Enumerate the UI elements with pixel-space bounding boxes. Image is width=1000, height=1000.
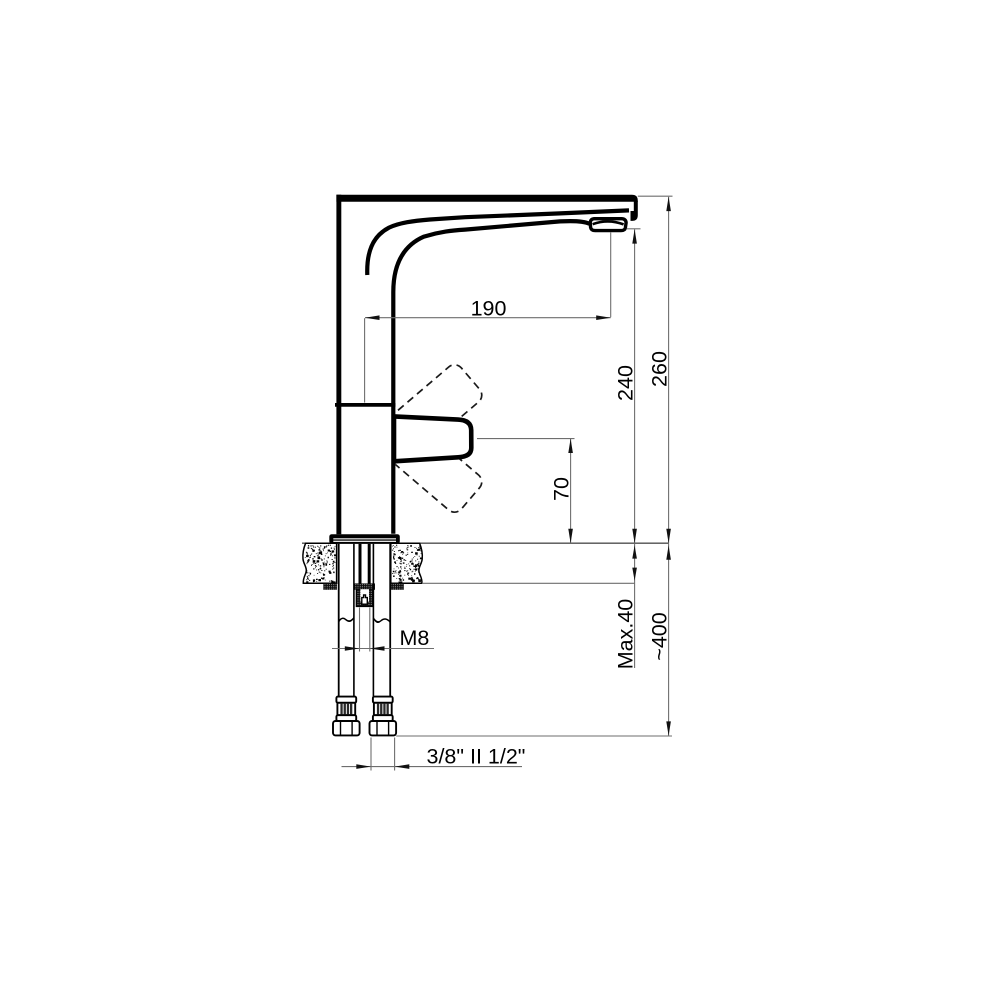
svg-text:70: 70: [550, 477, 574, 501]
svg-text:Max.40: Max.40: [614, 599, 638, 670]
svg-text:190: 190: [471, 297, 507, 321]
svg-text:M8: M8: [400, 626, 430, 650]
svg-text:3/8" II 1/2": 3/8" II 1/2": [427, 745, 526, 769]
svg-text:260: 260: [648, 351, 672, 387]
svg-text:240: 240: [614, 365, 638, 401]
svg-text:~400: ~400: [648, 612, 672, 660]
